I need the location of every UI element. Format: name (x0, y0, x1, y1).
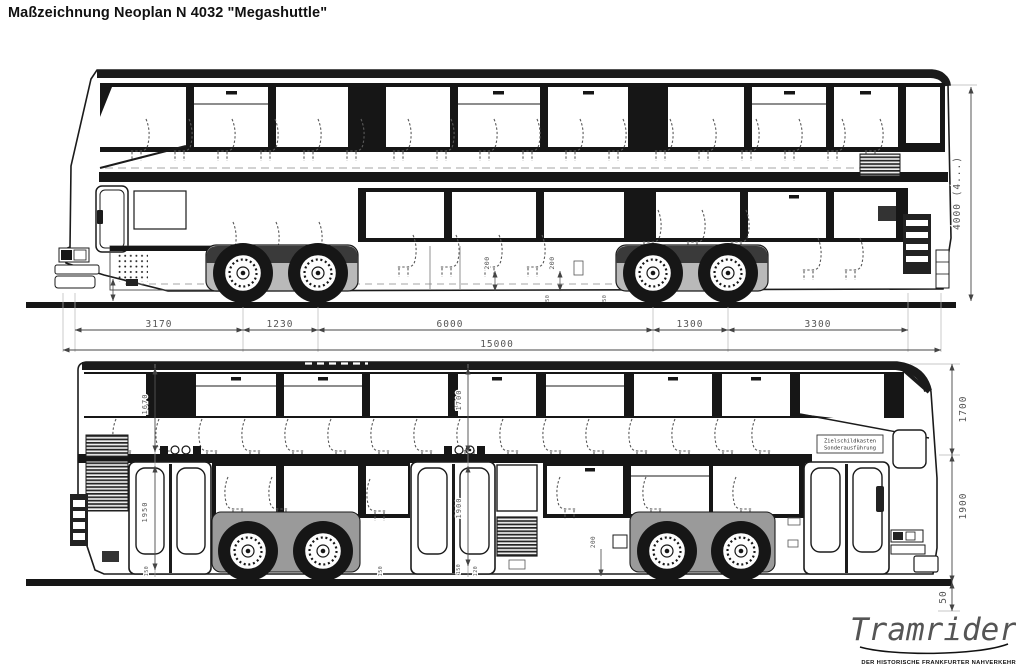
upper-deck-height-dim: 1670 (141, 394, 149, 415)
axle-dim: 1300 (677, 319, 704, 330)
rear-ladder (903, 214, 931, 274)
floor-height-dim: 200 (483, 256, 491, 269)
rear-axle-group (212, 512, 360, 581)
front-axle-group (206, 243, 358, 303)
front-axle-group (630, 512, 775, 581)
drawing-title: Maßzeichnung Neoplan N 4032 "Megashuttle… (8, 5, 327, 21)
axle-dim: 1230 (267, 319, 294, 330)
front-door (804, 462, 889, 574)
axle-dim: 6000 (437, 319, 464, 330)
step-height-dim: 150 (456, 564, 462, 575)
door-height-dim: 1900 (455, 498, 463, 519)
axle-dim: 3170 (146, 319, 173, 330)
flap-latch (126, 279, 138, 286)
tramrider-logo: Tramrider DER HISTORISCHE FRANKFURTER NA… (846, 607, 1016, 666)
wheel (288, 243, 348, 303)
step-height-dim: 120 (473, 566, 479, 577)
lower-deck-dim: 1900 (958, 493, 969, 520)
technical-drawing: 200 200 150 450 (0, 0, 1024, 672)
logo-script: Tramrider (846, 607, 1016, 657)
door-height-dim: 1950 (141, 502, 149, 523)
front-bumper (914, 556, 938, 572)
sign-text-line1: Zielschildkasten (824, 439, 876, 445)
lower-deck-windows-front (543, 463, 805, 518)
door-handle (97, 210, 103, 224)
upper-deck-dim: 1700 (958, 396, 969, 423)
logo-caption: DER HISTORISCHE FRANKFURTER NAHVERKEHR (846, 660, 1016, 666)
upper-side-view: 200 200 150 450 (55, 70, 951, 305)
wheel (293, 521, 353, 581)
step-height-dim: 150 (144, 566, 150, 577)
wheel (218, 521, 278, 581)
svg-text:200: 200 (590, 536, 597, 548)
ground-line-upper (26, 302, 956, 308)
engine-grille-lower (86, 461, 128, 511)
overall-height-dim: 4000 (4...) (952, 156, 963, 230)
logo-wordmark: Tramrider (850, 612, 1016, 648)
total-length-dim: 15000 (480, 339, 514, 350)
wheel (698, 243, 758, 303)
upper-deck-height-dim: 1700 (455, 390, 463, 411)
ground-line-lower (26, 579, 952, 586)
driver-door (96, 186, 128, 252)
below-floor-dim: 50 (938, 590, 949, 603)
lower-deck-windows-rear (212, 463, 410, 518)
axle-dim: 3300 (805, 319, 832, 330)
destination-sign-box: Zielschildkasten Sonderausführung (817, 435, 883, 453)
wheel (213, 243, 273, 303)
upper-deck-floor-band (99, 172, 948, 182)
front-side-window (893, 430, 926, 468)
sign-text-line2: Sonderausführung (824, 446, 876, 452)
rear-ladder (70, 494, 88, 546)
rear-bumper (936, 250, 949, 288)
front-bumper (55, 265, 99, 288)
wheel (623, 243, 683, 303)
skirt-dim: 150 (378, 566, 384, 577)
window-above-louver (497, 465, 537, 511)
lower-deck-windows (358, 188, 908, 242)
rear-vent (102, 551, 119, 562)
vent-dots (116, 254, 148, 282)
upper-deck-windows (88, 83, 945, 152)
heater-box (878, 206, 896, 221)
rear-axle-group (616, 243, 768, 303)
wheel (711, 521, 771, 581)
scanned-drawing-page: Maßzeichnung Neoplan N 4032 "Megashuttle… (0, 0, 1024, 672)
floor-height-dim: 200 (548, 256, 556, 269)
front-lower-window (134, 191, 186, 229)
headlight (59, 248, 89, 262)
upper-deck-windows (84, 372, 904, 424)
engine-grille-upper (86, 435, 128, 457)
door-handle (876, 486, 884, 512)
cooling-louver (497, 517, 537, 556)
middle-door (411, 462, 495, 574)
lower-side-view: Zielschildkasten Sonderausführung (70, 362, 938, 581)
wheel (637, 521, 697, 581)
rear-air-intake-louver (860, 154, 900, 176)
